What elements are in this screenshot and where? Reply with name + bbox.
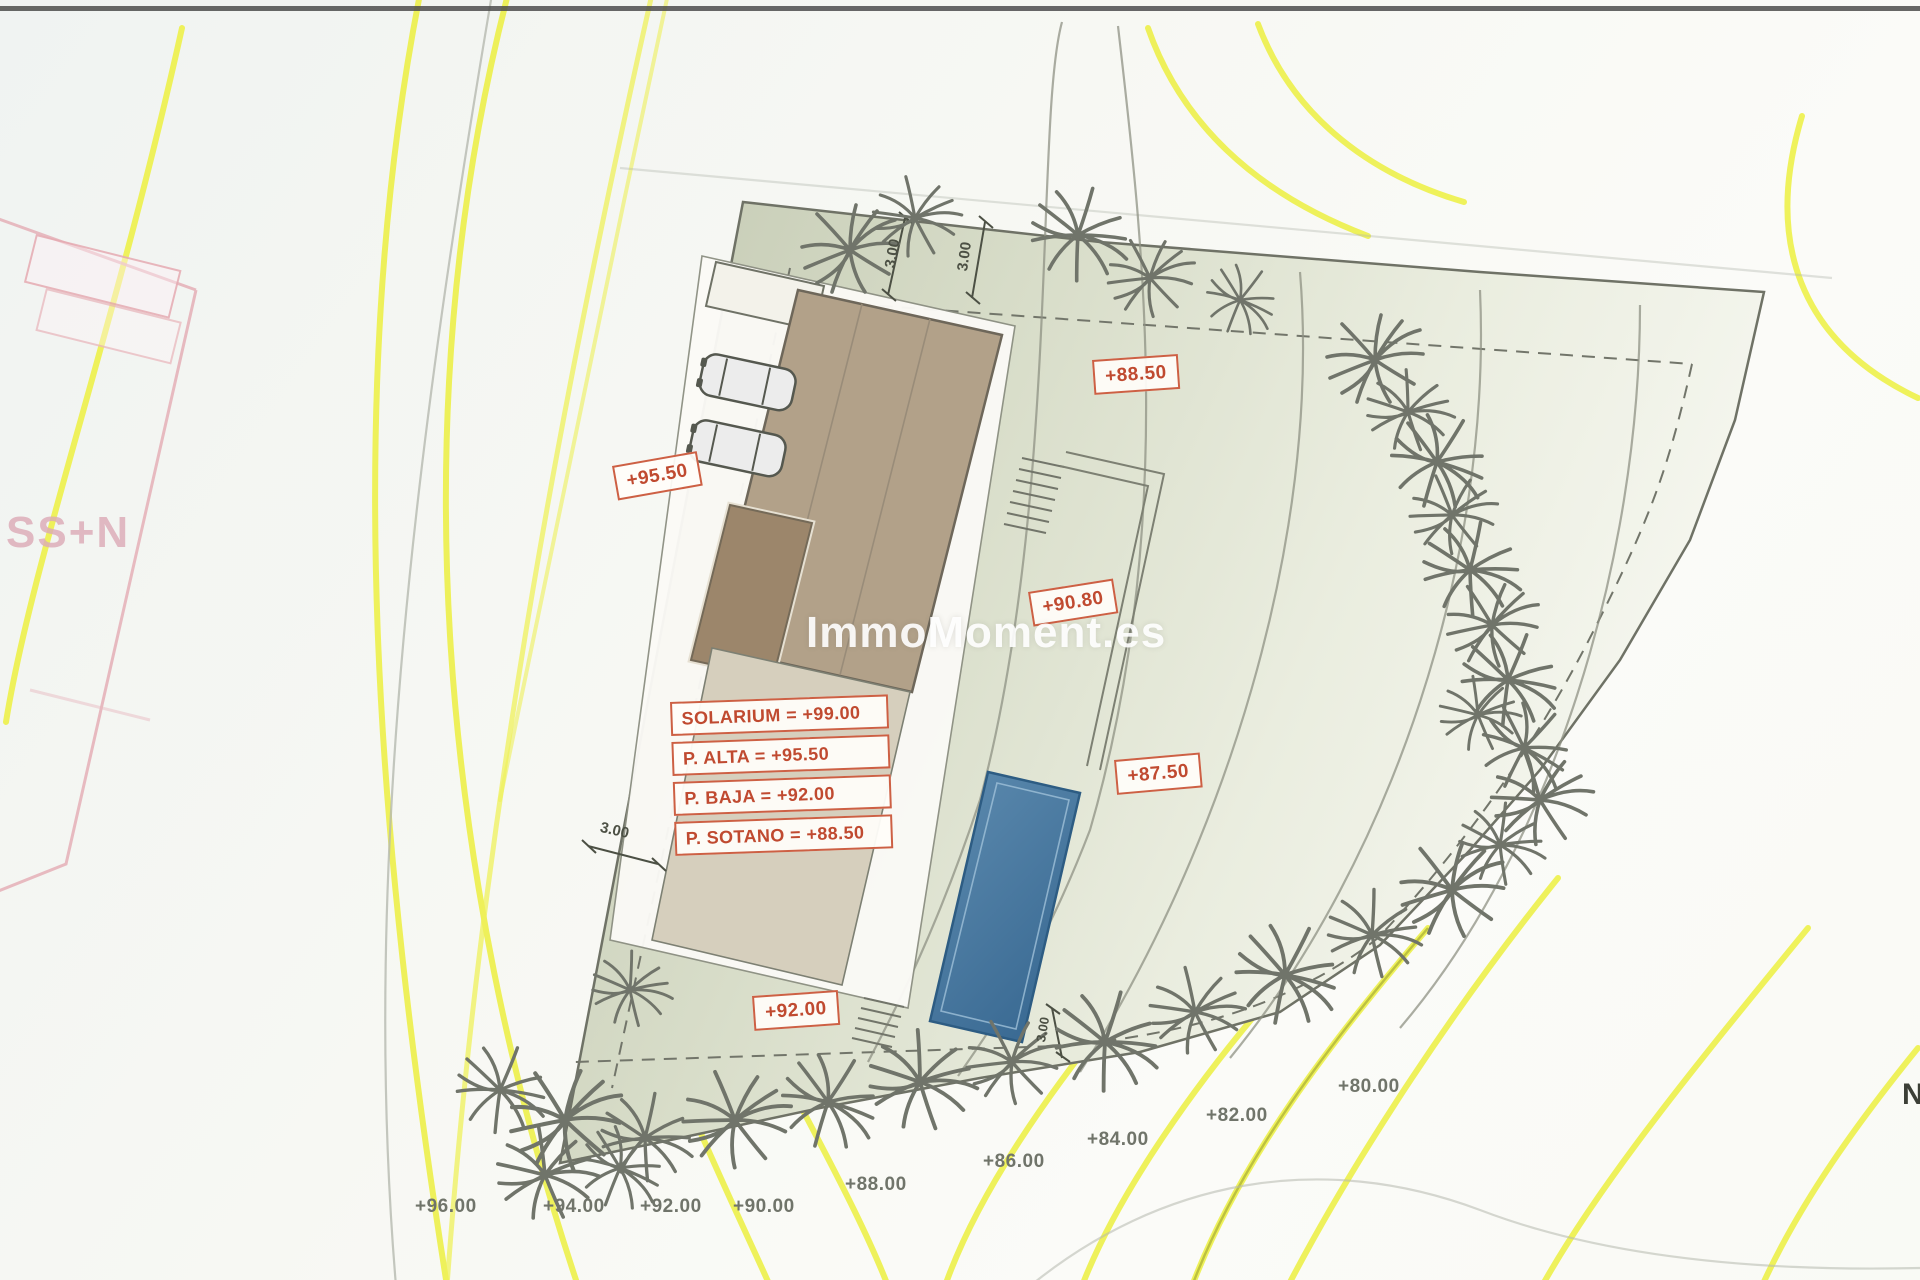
contour-label-84: +84.00 [1087, 1129, 1149, 1151]
north-mark: N [1902, 1078, 1920, 1112]
floor-level-sotano: P. SOTANO = +88.50 [674, 814, 893, 856]
top-border-line [0, 6, 1920, 11]
site-plan-screenshot: SS+N +95.50 +88.50 +90.80 +87.50 +92.00 … [0, 0, 1920, 1280]
elevation-label-88-50: +88.50 [1092, 354, 1180, 395]
contour-label-94: +94.00 [543, 1196, 605, 1218]
floor-level-solarium: SOLARIUM = +99.00 [670, 694, 889, 736]
floor-level-alta: P. ALTA = +95.50 [671, 734, 890, 776]
contour-label-80: +80.00 [1338, 1076, 1400, 1098]
contour-label-96: +96.00 [415, 1196, 477, 1218]
contour-label-82: +82.00 [1206, 1105, 1268, 1127]
contour-label-90: +90.00 [733, 1196, 795, 1218]
elevation-label-87-50: +87.50 [1114, 753, 1202, 795]
contour-label-92: +92.00 [640, 1196, 702, 1218]
elevation-label-92-00: +92.00 [752, 990, 840, 1031]
contour-label-86: +86.00 [983, 1151, 1045, 1173]
floor-levels-table: SOLARIUM = +99.00 P. ALTA = +95.50 P. BA… [670, 694, 893, 862]
floor-level-baja: P. BAJA = +92.00 [673, 774, 892, 816]
contour-label-88: +88.00 [845, 1174, 907, 1196]
watermark-text: ImmoMoment.es [806, 608, 1166, 658]
neighbor-parcel-text: SS+N [6, 508, 130, 558]
